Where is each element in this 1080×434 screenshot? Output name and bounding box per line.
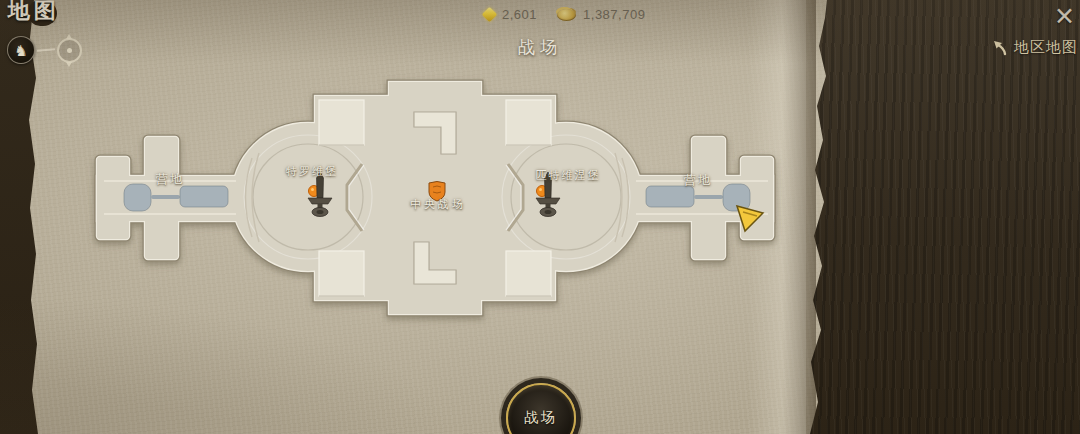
return-arrow-icon [992, 39, 1009, 56]
battlefield-mode-label: 战场 [524, 409, 558, 427]
compass-tick-bottom [66, 62, 72, 67]
currency-bar: 2,601 1,387,709 [484, 7, 645, 22]
gold-coins-icon [557, 9, 576, 21]
gold-value: 1,387,709 [583, 7, 645, 22]
close-icon[interactable]: ✕ [1048, 0, 1080, 33]
diamond-icon [482, 7, 498, 23]
game-map-screen: 特罗维堡 匹特维涅堡 中央战场 营地 营地 地图 ♞ 2,601 1,387,7… [0, 0, 1080, 434]
page-title: 战场 [0, 36, 1080, 59]
right-fort-label: 匹特维涅堡 [520, 168, 616, 183]
right-camp-label: 营地 [676, 172, 720, 189]
diamond-currency[interactable]: 2,601 [484, 7, 537, 22]
region-map-label: 地区地图 [1014, 38, 1078, 57]
center-area-label: 中央战场 [394, 197, 482, 212]
left-camp-label: 营地 [148, 171, 192, 188]
diamond-value: 2,601 [502, 7, 537, 22]
region-map-button[interactable]: 地区地图 [992, 38, 1078, 57]
screen-title: 地图 [8, 0, 60, 26]
left-fort-label: 特罗维堡 [268, 164, 356, 179]
torn-edge-shadow [782, 0, 816, 434]
right-wood-panel [806, 0, 1080, 434]
gold-currency[interactable]: 1,387,709 [557, 7, 645, 22]
